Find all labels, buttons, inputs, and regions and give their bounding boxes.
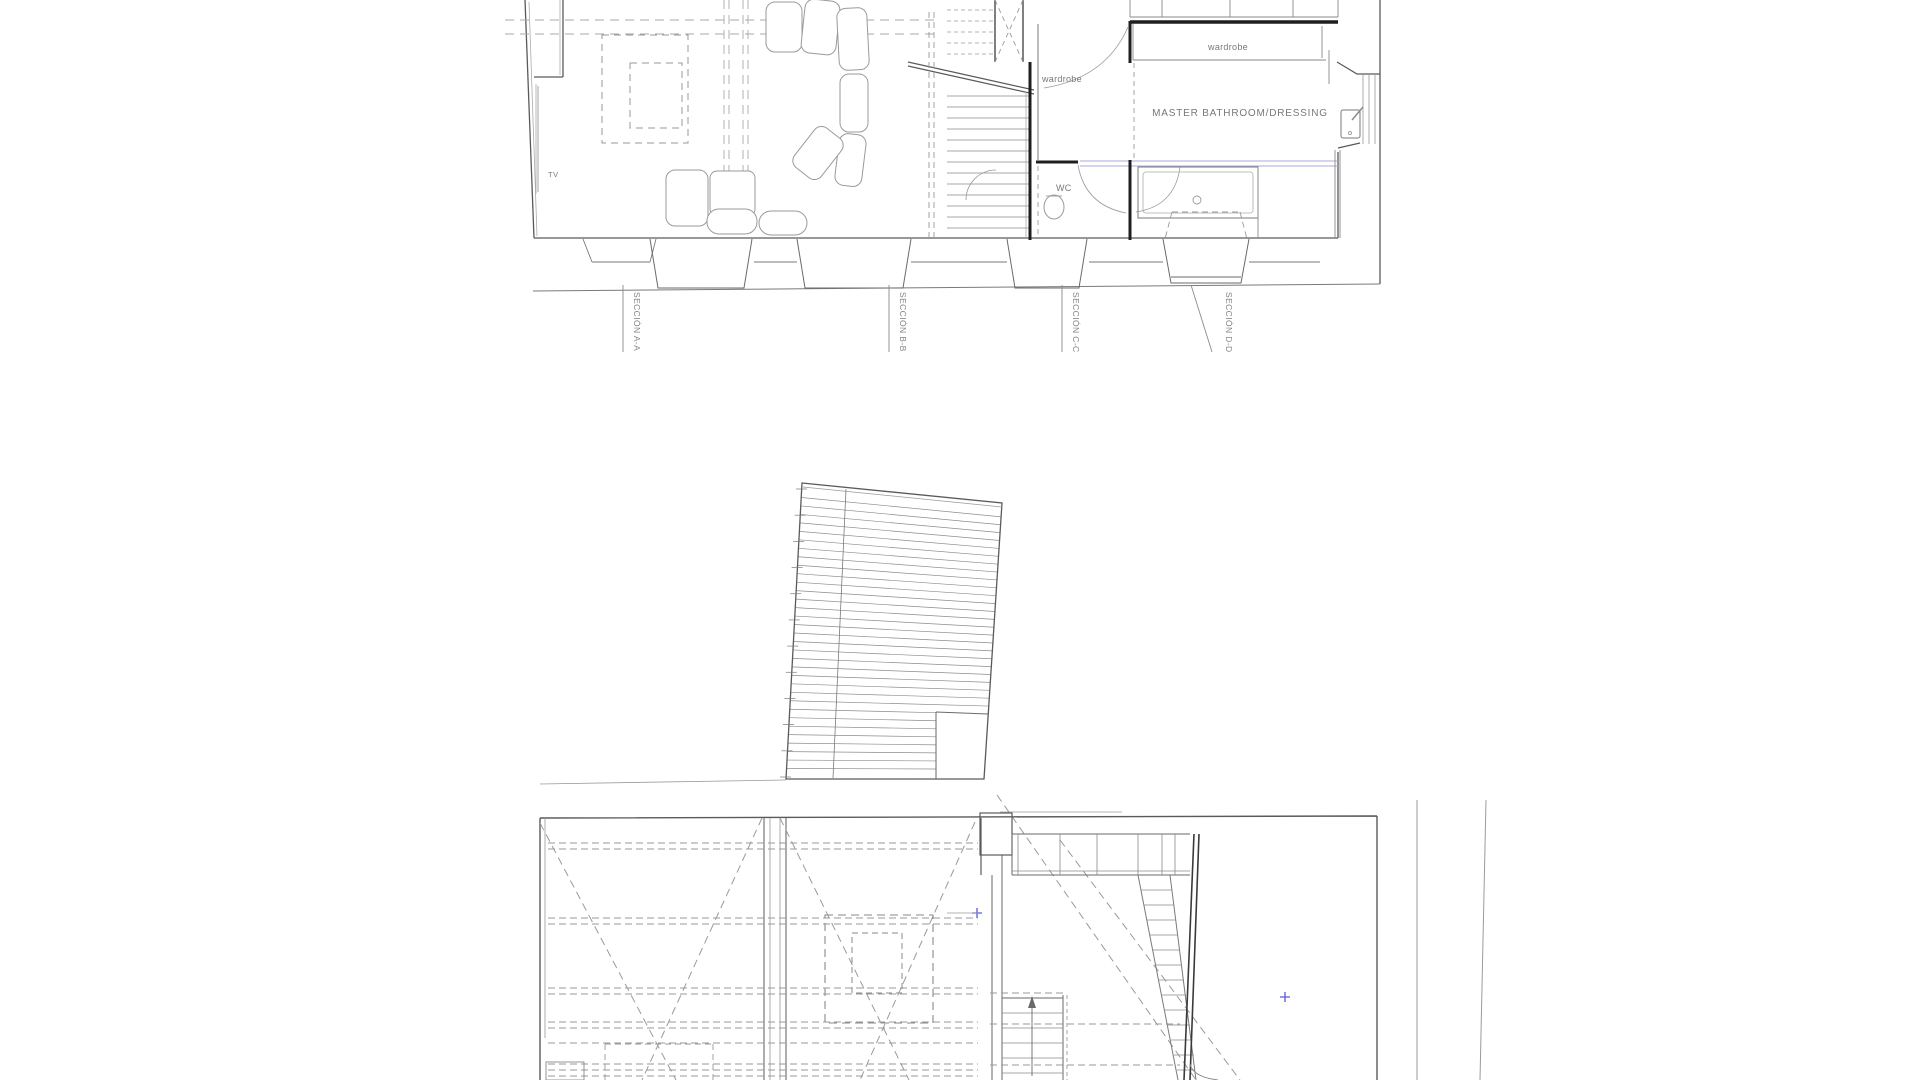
wc-wall-dark (1036, 160, 1130, 240)
lower-mid-wall-inner (770, 818, 780, 1080)
bathtub-drain (1193, 196, 1201, 204)
roof-slat (794, 625, 993, 636)
wall-hatch (1363, 74, 1375, 144)
section-label-cc: SECCIÓN C-C (1071, 292, 1081, 353)
bathtub-inner (1143, 172, 1253, 213)
sofa-module (836, 7, 869, 70)
wardrobe-corridor: wardrobe (1038, 21, 1130, 160)
roof-slat (801, 506, 1001, 525)
label-tv: TV (548, 170, 559, 179)
site-boundary-lines (1417, 800, 1486, 1080)
roof-slat (794, 641, 993, 650)
upper-walls (525, 0, 1380, 284)
cabinet-strip (1130, 0, 1338, 17)
survey-cross (972, 908, 1290, 1002)
roof-slat (790, 701, 989, 706)
roof-plan (540, 483, 1002, 784)
roof-slat (801, 514, 1001, 532)
closet-box (1133, 24, 1329, 84)
roof-slat (787, 760, 936, 761)
lower-floor-plan (540, 795, 1486, 1080)
sofa-module (766, 2, 802, 52)
section-label-aa: SECCIÓN A-A (632, 292, 642, 351)
roof-slat (787, 752, 936, 753)
label-master-bathroom: MASTER BATHROOM/DRESSING (1152, 108, 1328, 119)
upper-walls-inner (529, 0, 560, 236)
roof-slat (798, 557, 998, 572)
roof-slat (800, 531, 1000, 548)
roof-slat (790, 709, 936, 712)
toilet (1044, 195, 1064, 219)
label-wc: WC (1056, 183, 1072, 193)
sink-faucet (1352, 107, 1363, 120)
flight-rails (1138, 875, 1196, 1080)
sink-drain (1349, 132, 1352, 135)
skylight-inner (630, 63, 682, 128)
roof-slat (797, 582, 996, 596)
lower-skylight-outer (825, 915, 933, 1023)
roof-slat (791, 684, 990, 690)
blue-guide-line (1080, 161, 1338, 166)
roof-slat (799, 548, 999, 564)
sofa-module (840, 74, 868, 132)
lower-main-walls (540, 816, 1377, 1080)
roof-slat (800, 523, 1000, 541)
bathtub-outer (1138, 167, 1258, 218)
roof-slat (793, 658, 992, 666)
drawing-sheet: TV (0, 0, 1920, 1080)
lower-skylight-inner (852, 933, 902, 993)
roof-slat (793, 650, 992, 659)
upper-floor-plan: TV (505, 0, 1380, 353)
roof-mid-line (833, 489, 846, 778)
lower-stair-treads (1002, 1013, 1063, 1073)
roof-trace-diagonals (540, 795, 1240, 1080)
roof-slat (791, 692, 990, 698)
corner-block (980, 813, 1012, 855)
bottom-dashed-box (605, 1044, 713, 1080)
section-label-bb: SECCIÓN B-B (898, 292, 908, 352)
roof-slat (792, 675, 991, 682)
stair-cross-brace (995, 0, 1023, 62)
landing-door-arc (966, 170, 996, 200)
lower-wall-inner (545, 812, 1122, 1038)
stair-cut-line (908, 62, 1034, 94)
stairwell-walls (992, 855, 1002, 1080)
lower-mid-wall (764, 818, 786, 1080)
section-markers: SECCIÓN A-A SECCIÓN B-B SECCIÓN C-C SECC… (623, 285, 1234, 353)
wc-door-arc (1078, 165, 1126, 213)
roof-slat (789, 718, 936, 721)
architectural-drawing: TV (0, 0, 1920, 1080)
stair-treads (947, 96, 1029, 228)
roof-slat (798, 565, 997, 580)
roof-base-extension (540, 780, 786, 784)
flight-treads (1141, 890, 1195, 1070)
section-lines (623, 285, 1212, 352)
roof-slat (788, 743, 936, 745)
wall-ledges (583, 239, 1320, 262)
master-bathroom: MASTER BATHROOM/DRESSING (1080, 63, 1375, 166)
grid-dashed-horizontal (505, 20, 940, 34)
wardrobe-closet: wardrobe (1130, 0, 1338, 84)
label-corridor-wardrobe: wardrobe (1041, 74, 1082, 84)
sofa-module (800, 0, 840, 56)
roof-slat (789, 726, 936, 729)
roof-top-edge-double (803, 487, 1002, 507)
stair-side-dashed (929, 12, 934, 238)
bath-separators (1258, 150, 1340, 238)
roof-notch-mask (936, 713, 988, 778)
stair-treads-dashed (947, 10, 995, 54)
armchair (666, 170, 708, 226)
stair-lower (1002, 995, 1067, 1080)
staircase-upper (908, 0, 1034, 240)
roof-slat (799, 540, 999, 556)
pouf (759, 211, 807, 235)
roof-slat (794, 633, 993, 643)
pouf (707, 209, 757, 234)
roof-slat (797, 574, 996, 588)
roof-slat (792, 667, 991, 675)
roof-slat (796, 591, 995, 604)
label-closet-wardrobe: wardrobe (1207, 42, 1248, 52)
wall-buttresses (650, 239, 1249, 288)
section-label-dd: SECCIÓN D-D (1224, 292, 1234, 353)
skylight-outer (602, 35, 688, 143)
roof-slat (788, 735, 936, 737)
bath-buttress-dashed (1165, 212, 1247, 239)
joist-rows-dashed (548, 843, 1180, 1076)
sofa-group (666, 0, 870, 235)
bottom-small-box (546, 1062, 584, 1080)
